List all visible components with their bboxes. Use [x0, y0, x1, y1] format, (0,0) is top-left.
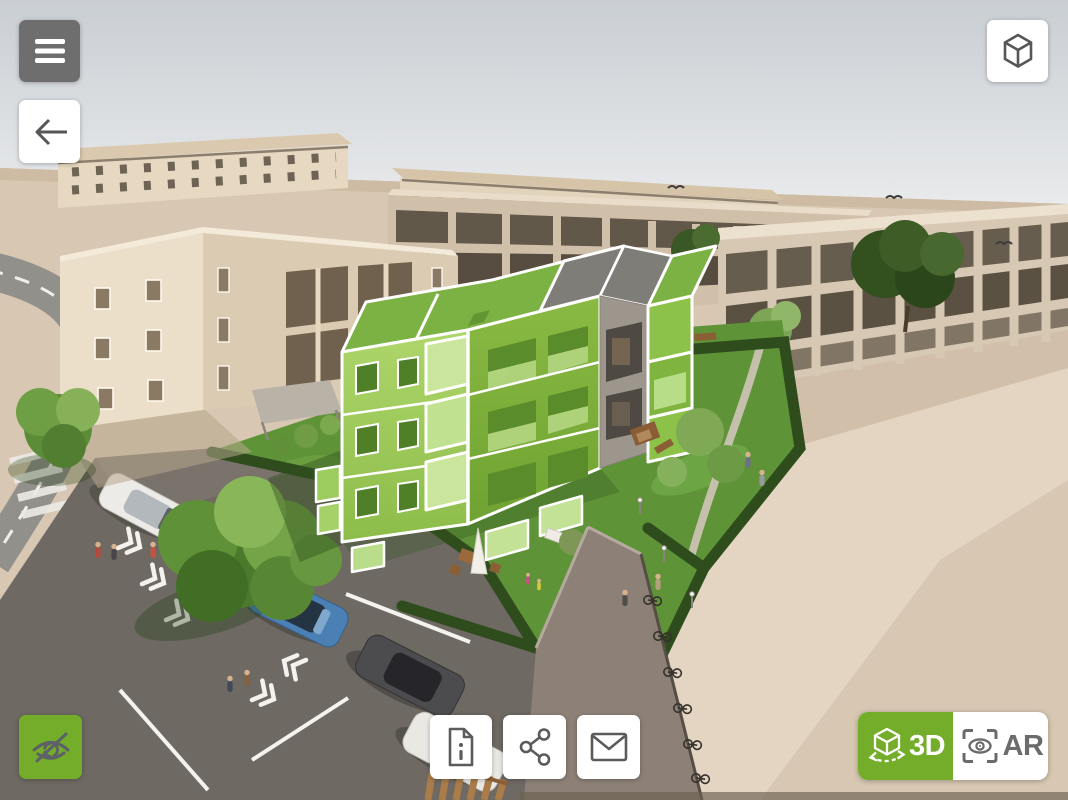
view-mode-ar-button[interactable]: AR [953, 712, 1048, 780]
model-view-button[interactable] [987, 20, 1048, 82]
model-viewport[interactable] [0, 0, 1068, 800]
cube-rotate-icon [866, 725, 908, 767]
share-icon [515, 726, 555, 768]
eye-slash-icon [29, 725, 73, 769]
hamburger-icon [33, 37, 67, 65]
menu-button[interactable] [19, 20, 80, 82]
mail-icon [589, 731, 629, 763]
cube-icon [998, 29, 1038, 73]
view-mode-3d-button[interactable]: 3D [858, 712, 953, 780]
back-button[interactable] [19, 100, 80, 163]
hide-highlight-button[interactable] [19, 715, 82, 779]
view-mode-3d-label: 3D [909, 730, 945, 763]
contact-button[interactable] [577, 715, 640, 779]
view-mode-switch: 3D AR [858, 712, 1048, 780]
share-button[interactable] [503, 715, 566, 779]
info-button[interactable] [430, 715, 492, 779]
bottom-edge-shadow [520, 792, 1068, 800]
viewer-app: 3D AR [0, 0, 1068, 800]
info-document-icon [443, 726, 479, 768]
arrow-left-icon [30, 116, 70, 148]
view-mode-ar-label: AR [1003, 730, 1044, 763]
ar-eye-icon [958, 724, 1002, 768]
